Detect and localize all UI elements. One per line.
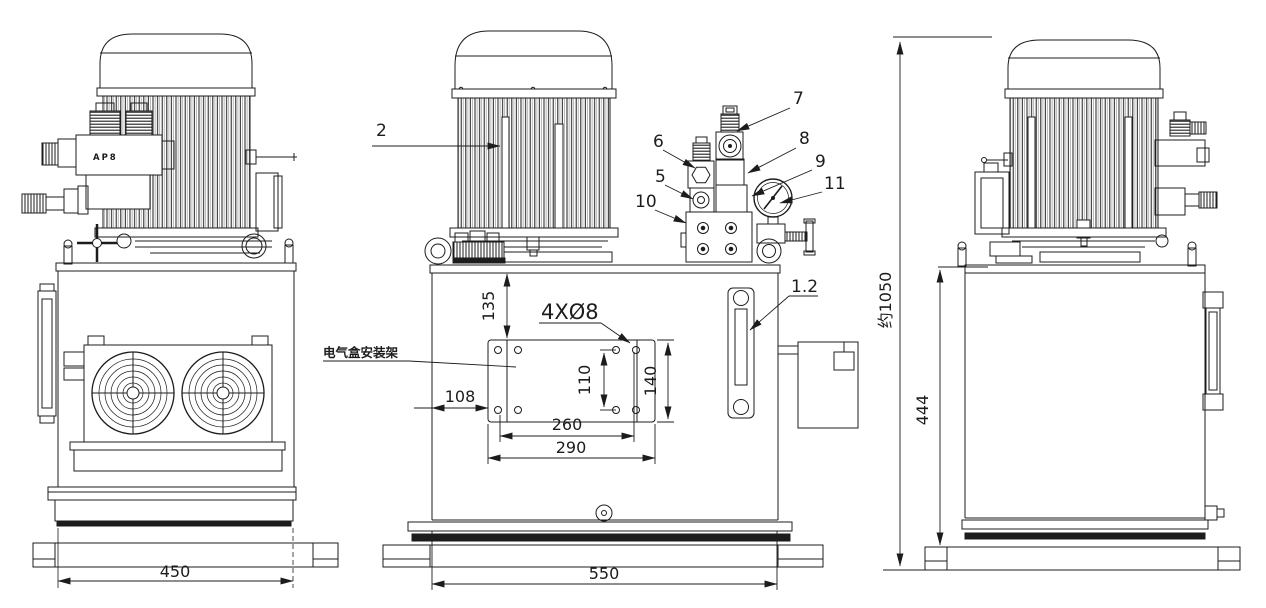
dim-108: 108	[445, 387, 476, 406]
dim-290: 290	[556, 438, 587, 457]
dim-110: 110	[575, 365, 594, 396]
dim-140: 140	[641, 366, 660, 397]
label-item9: 9	[815, 152, 826, 172]
motor-seam-right-view-a	[1028, 117, 1035, 228]
dim-1050: 约1050	[876, 272, 895, 329]
dim-135: 135	[479, 291, 498, 322]
valve-marking-text: AP8	[93, 153, 118, 163]
motor-seam-left	[502, 117, 509, 228]
label-item10: 10	[635, 192, 657, 212]
drawing-canvas: AP8	[0, 0, 1266, 608]
manifold-block	[681, 212, 752, 262]
dim-450: 450	[160, 562, 191, 581]
label-item8: 8	[799, 129, 810, 149]
label-item5: 5	[655, 167, 666, 187]
cooler-fan-left	[92, 352, 174, 434]
label-item6: 6	[653, 132, 664, 152]
dim-550: 550	[589, 564, 620, 583]
bracket-note-text: 电气盒安装架	[323, 345, 399, 360]
label-item7: 7	[793, 89, 804, 109]
motor-flange-right	[1002, 228, 1166, 237]
hole-callout-text: 4XØ8	[541, 300, 599, 324]
label-level-gauge: 1.2	[791, 277, 818, 297]
dim-260: 260	[552, 415, 583, 434]
cooler-fan-right	[182, 352, 264, 434]
label-motor: 2	[376, 121, 387, 141]
label-item11: 11	[824, 174, 846, 194]
motor-seam-right-view-b	[1125, 117, 1132, 228]
dim-444: 444	[913, 395, 932, 426]
motor-seam-right	[555, 124, 563, 228]
motor-flange-front	[450, 228, 618, 237]
motor-fin-body-front	[458, 98, 610, 228]
